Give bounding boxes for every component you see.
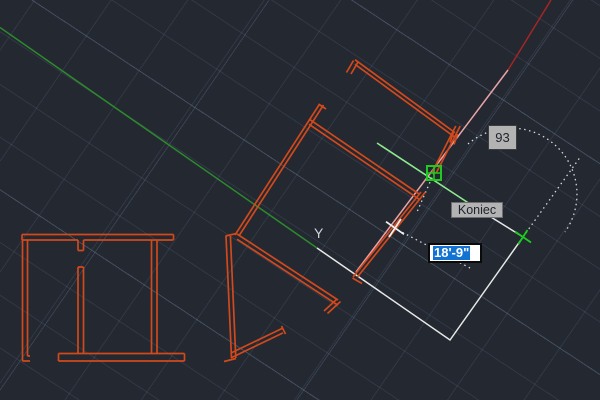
wall-right	[152, 240, 158, 354]
osnap-tooltip-label: Koniec	[458, 204, 496, 217]
dynamic-input-field[interactable]: 18'-9"	[428, 243, 482, 263]
wall-right-lower	[353, 192, 426, 284]
drawing-canvas[interactable]: Y 93 Koniec 18'-9"	[0, 0, 600, 400]
wall-bottom	[59, 354, 185, 362]
osnap-tooltip: Koniec	[451, 202, 503, 218]
wall-bottom-left-edge	[237, 234, 341, 314]
wall-shallow-bottom	[231, 326, 286, 358]
wall-vertical	[224, 234, 237, 362]
wall-left	[23, 240, 31, 361]
y-axis-label: Y	[314, 226, 323, 240]
drawn-polyline	[317, 237, 523, 340]
angle-tooltip: 93	[488, 125, 517, 150]
dynamic-input-selected-text[interactable]: 18'-9"	[433, 246, 470, 260]
x-axis-line	[508, 0, 551, 70]
tracking-dotted-ray	[523, 156, 581, 237]
acquired-point-cross-icon	[515, 230, 531, 244]
wall-geometry-top-bar	[347, 60, 458, 145]
y-axis-line	[0, 28, 317, 249]
wall-interior	[78, 267, 84, 354]
axis-lines	[0, 0, 551, 272]
wall-geometry-ortho-room	[22, 235, 185, 362]
wall-bar	[347, 60, 458, 145]
angle-tooltip-value: 93	[495, 131, 509, 144]
wall-left-edge	[235, 104, 326, 235]
green-cross	[515, 230, 531, 244]
drawing-layer	[0, 0, 600, 400]
